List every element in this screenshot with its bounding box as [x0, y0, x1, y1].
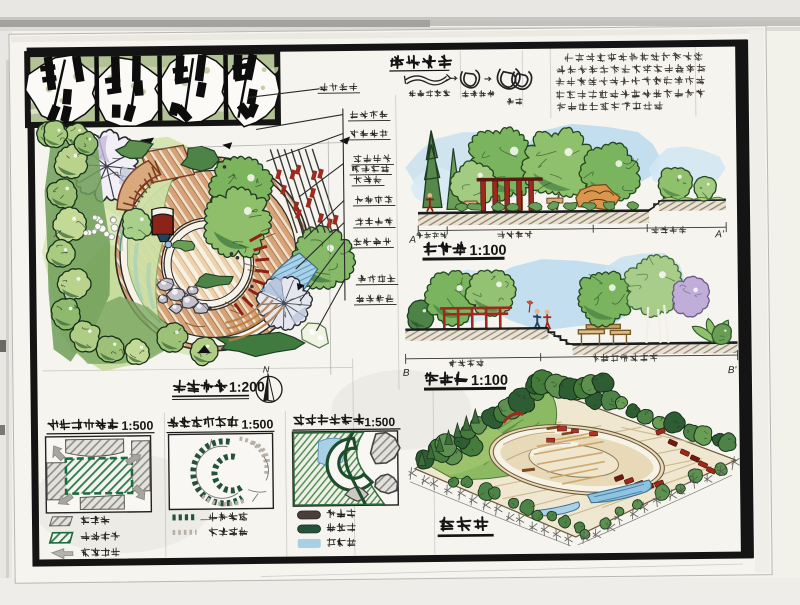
svg-text:B': B': [728, 365, 738, 376]
svg-text:A': A': [714, 229, 725, 240]
svg-text:B: B: [403, 368, 410, 379]
svg-text:A: A: [408, 235, 416, 246]
svg-text:1:500: 1:500: [241, 417, 273, 431]
svg-text:—: —: [200, 514, 209, 524]
svg-text:1:500: 1:500: [364, 415, 395, 429]
svg-text:1:100: 1:100: [469, 243, 506, 259]
svg-text:1:500: 1:500: [121, 419, 153, 433]
svg-text:N: N: [263, 364, 270, 374]
svg-text:1:100: 1:100: [471, 373, 508, 389]
